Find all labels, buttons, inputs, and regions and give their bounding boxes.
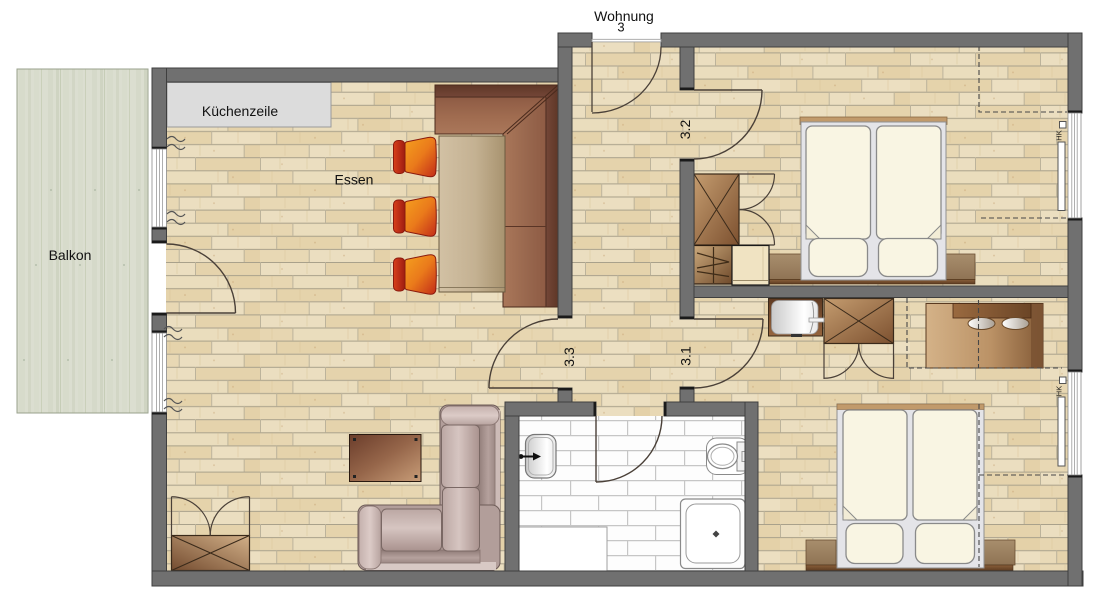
svg-text:3: 3 xyxy=(617,20,624,35)
svg-text:HK: HK xyxy=(1055,386,1064,396)
svg-text:3.2: 3.2 xyxy=(677,120,693,140)
svg-text:Essen: Essen xyxy=(335,172,374,188)
svg-text:3.3: 3.3 xyxy=(561,347,577,367)
svg-text:HK: HK xyxy=(1055,130,1064,140)
svg-text:3.1: 3.1 xyxy=(678,346,694,366)
svg-text:Küchenzeile: Küchenzeile xyxy=(202,103,278,119)
svg-text:Balkon: Balkon xyxy=(49,247,92,263)
